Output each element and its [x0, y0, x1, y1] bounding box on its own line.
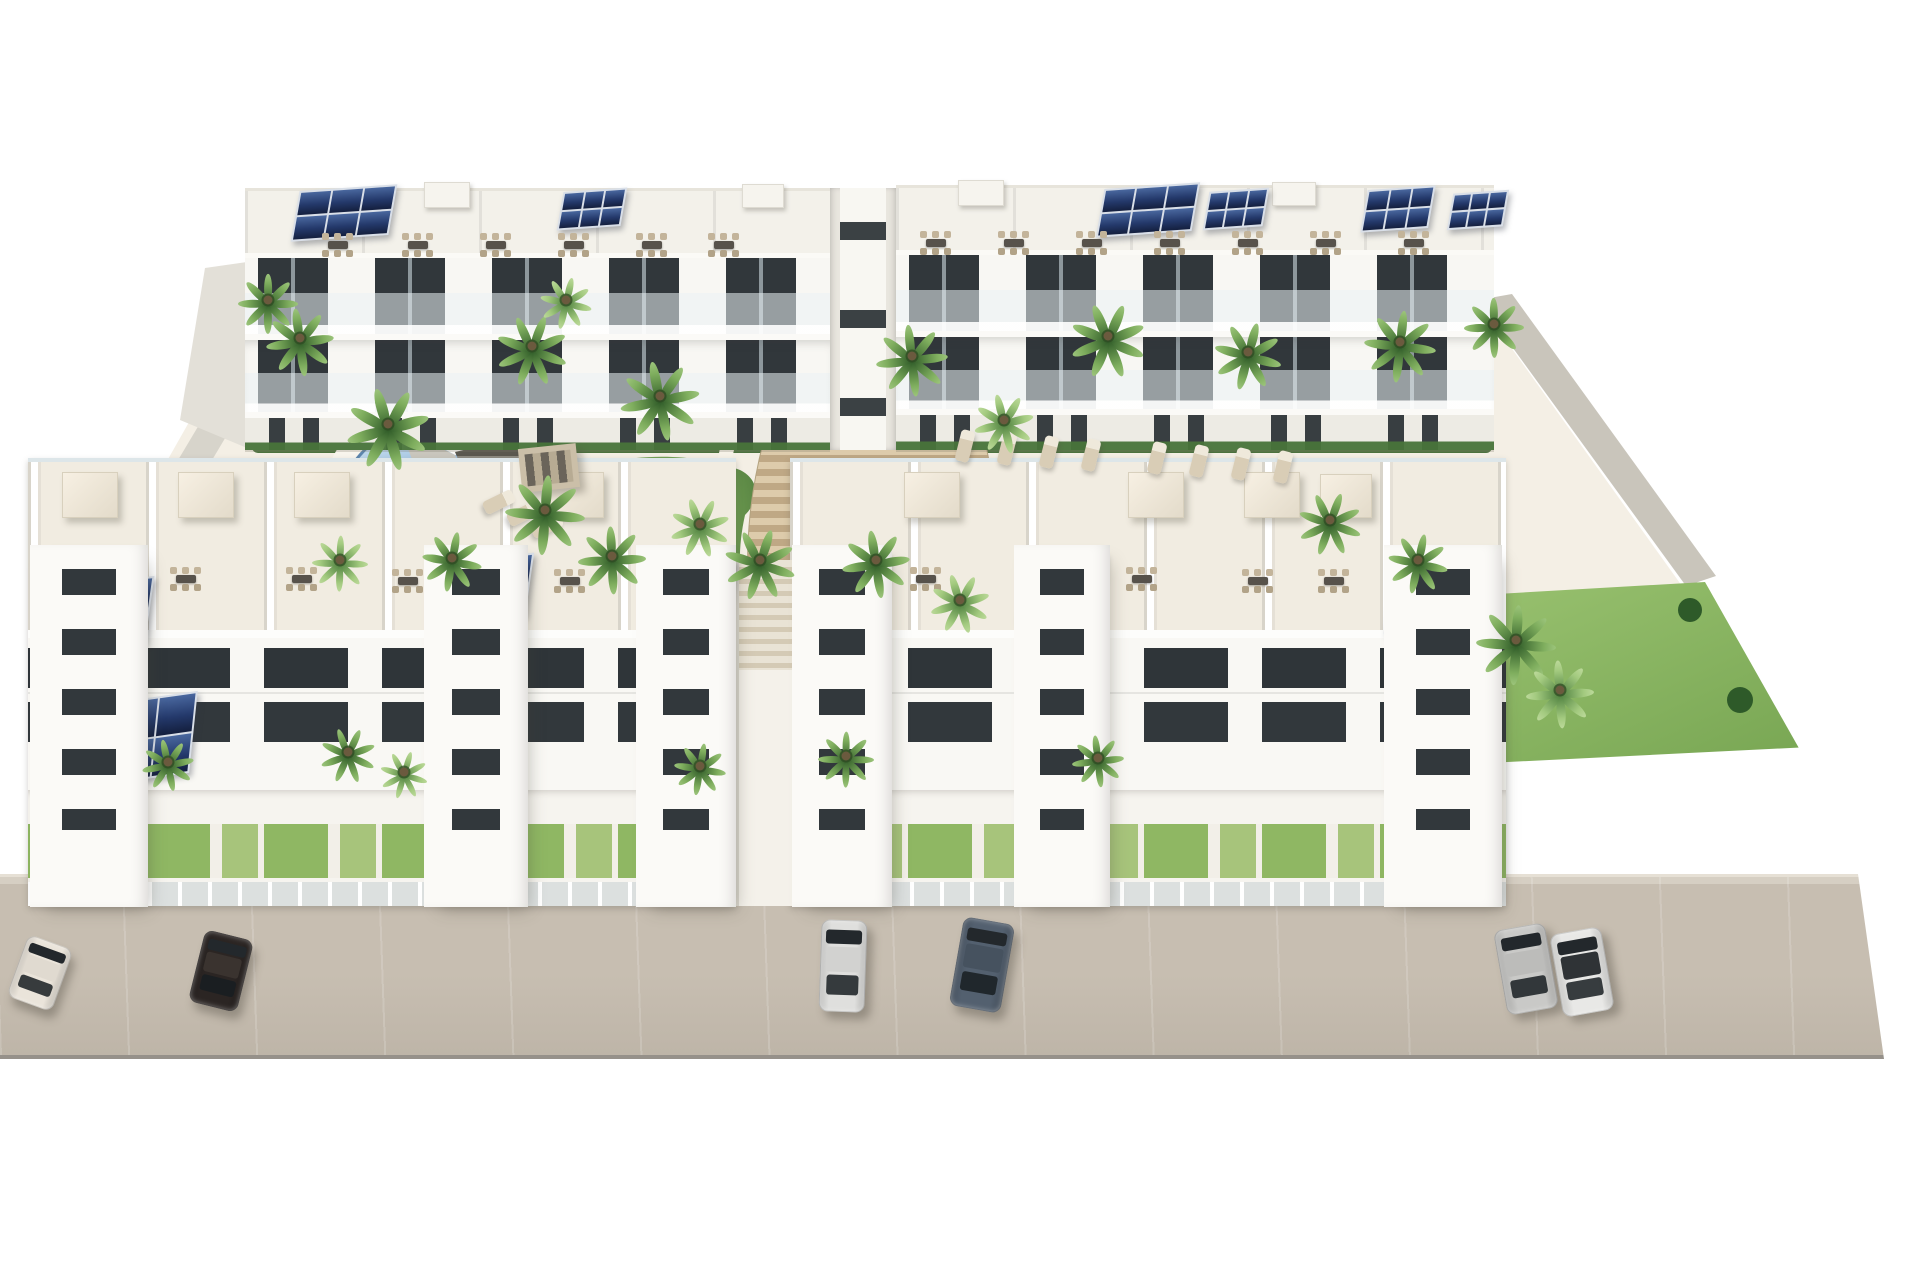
street-facade [790, 638, 1506, 790]
central-walkway [736, 560, 796, 906]
upper-balcony-floor [896, 255, 1494, 337]
upper-balcony-floor [245, 258, 830, 340]
rear-blocks-link [830, 188, 896, 450]
rendering-canvas [0, 0, 1920, 1280]
ground-floor-gardens [28, 790, 736, 906]
back-left-block [245, 188, 830, 450]
front-left-block [28, 458, 736, 906]
street-facade [28, 638, 736, 790]
back-right-block [896, 185, 1494, 450]
rooftop-terraces [790, 458, 1506, 638]
lower-balcony-floor [245, 340, 830, 418]
ground-floor-gardens [790, 790, 1506, 906]
ground-floor [896, 415, 1494, 450]
lower-balcony-floor [896, 337, 1494, 415]
ground-floor [245, 418, 830, 450]
rooftop-terraces [28, 458, 736, 638]
rooftop-terrace-band [245, 188, 830, 258]
front-right-block [790, 458, 1506, 906]
back-left-side-wall [180, 262, 247, 448]
rooftop-terrace-band [896, 185, 1494, 255]
